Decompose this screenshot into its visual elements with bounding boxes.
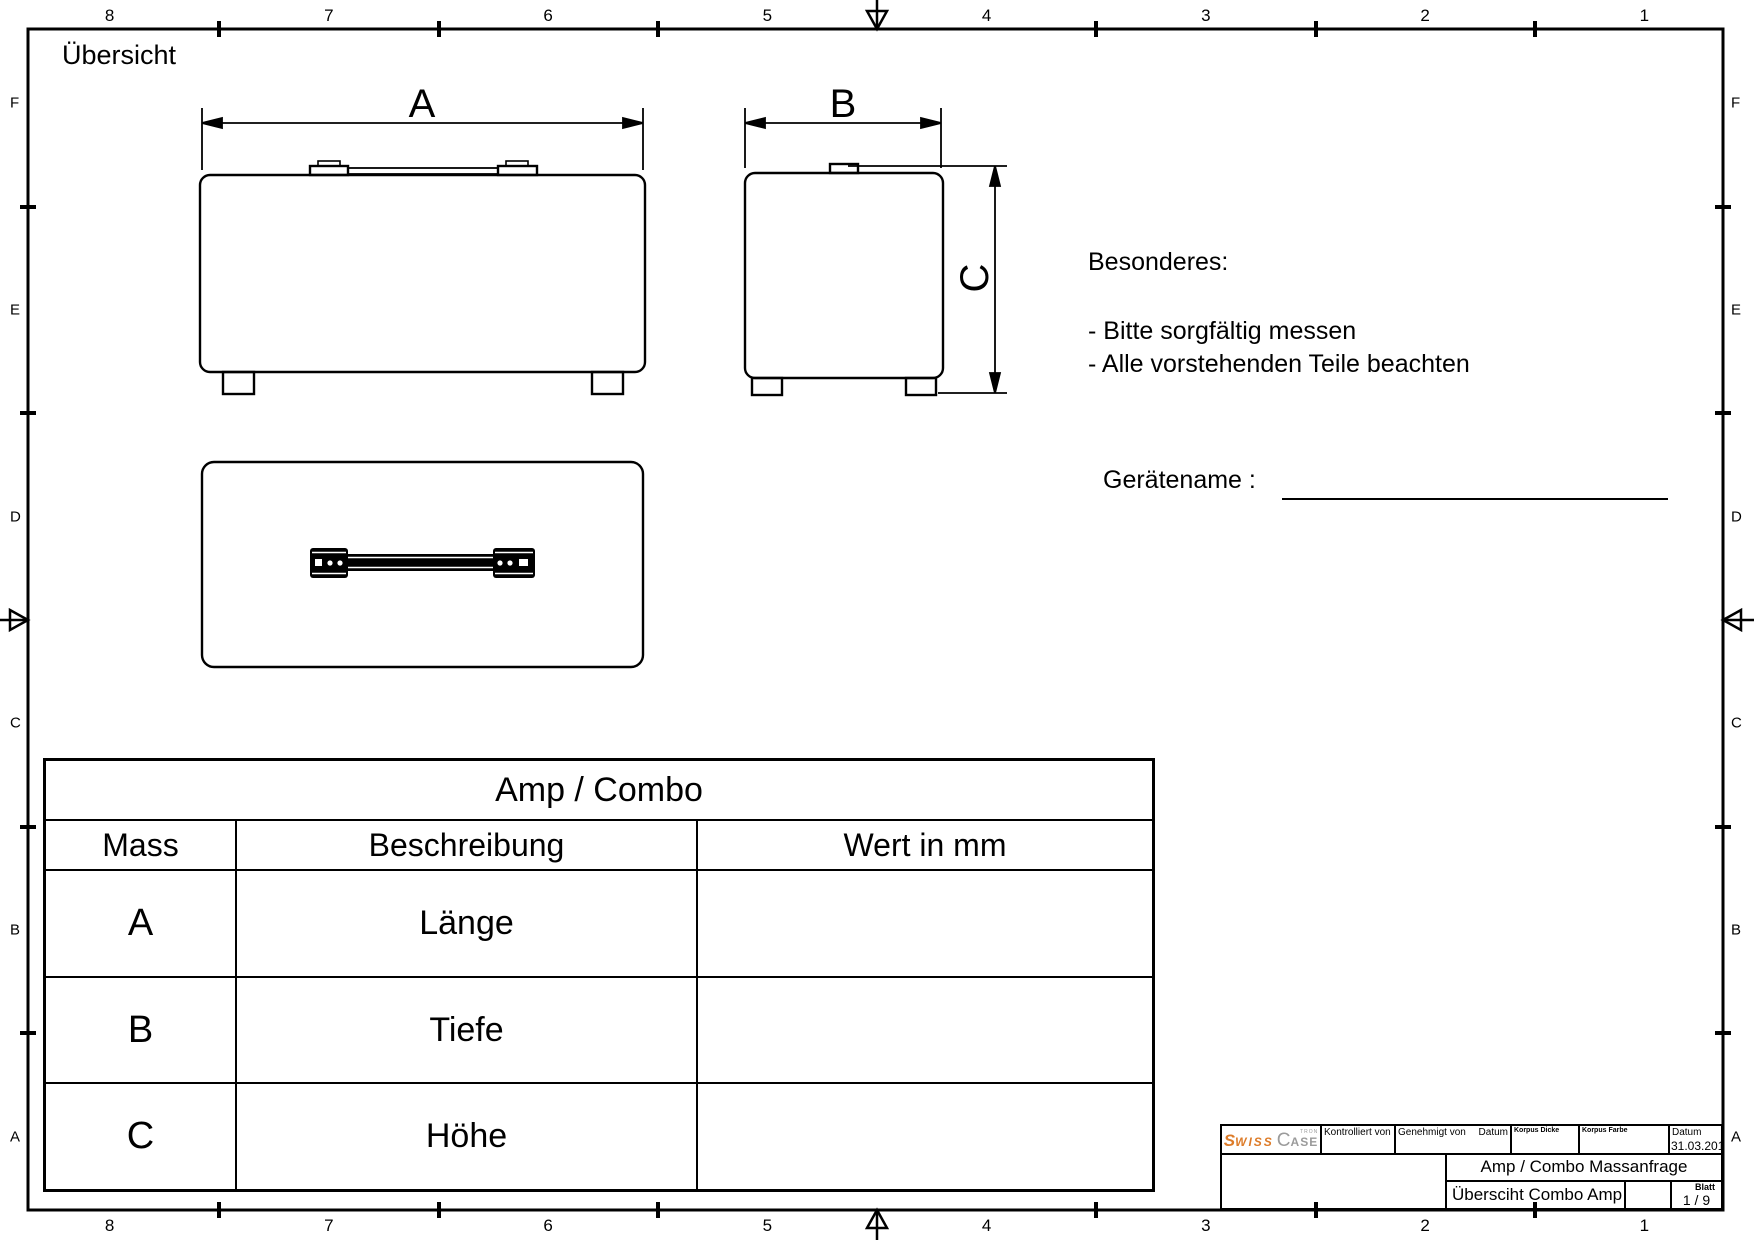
zone-column-label: 8: [105, 6, 114, 26]
zone-column-label: 2: [1420, 6, 1429, 26]
table-row: A Länge: [46, 869, 1152, 976]
front-foot-right: [592, 372, 623, 394]
kontrolliert-cell: Kontrolliert von: [1320, 1126, 1394, 1153]
zone-tick: [1314, 1202, 1318, 1218]
row-mass: A: [46, 871, 235, 976]
zone-tick: [217, 21, 221, 37]
front-handle-bracket-right: [498, 166, 537, 175]
zone-tick: [20, 205, 36, 209]
top-view-handle: [310, 548, 535, 578]
zone-row-label: D: [1731, 508, 1742, 525]
side-view: [745, 164, 943, 395]
zone-tick: [1314, 21, 1318, 37]
col-header-mass: Mass: [46, 821, 235, 869]
table-row: C Höhe: [46, 1082, 1152, 1189]
table-row: B Tiefe: [46, 976, 1152, 1083]
zone-tick: [437, 1202, 441, 1218]
zone-row-label: E: [1731, 302, 1741, 319]
zone-tick: [1715, 825, 1731, 829]
side-foot-right: [906, 378, 936, 395]
zone-column-label: 8: [105, 1216, 114, 1236]
row-mass: C: [46, 1084, 235, 1189]
centering-mark-top: [867, 0, 887, 29]
zone-column-label: 6: [543, 1216, 552, 1236]
zone-column-label: 1: [1640, 6, 1649, 26]
device-name-label: Gerätename :: [1103, 466, 1256, 495]
zone-column-label: 3: [1201, 6, 1210, 26]
zone-tick: [1715, 411, 1731, 415]
zone-row-label: E: [10, 302, 20, 319]
row-wert-field[interactable]: [696, 871, 1152, 976]
genehmigt-cell: Genehmigt von Datum: [1394, 1126, 1510, 1153]
zone-row-label: A: [10, 1128, 20, 1145]
side-foot-left: [752, 378, 782, 395]
zone-row-label: B: [1731, 922, 1741, 939]
zone-tick: [20, 411, 36, 415]
zone-column-label: 6: [543, 6, 552, 26]
zone-row-label: C: [10, 715, 21, 732]
logo-cell: SWISSCTRONASE: [1222, 1126, 1320, 1153]
row-wert-field[interactable]: [696, 978, 1152, 1083]
zone-column-label: 7: [324, 6, 333, 26]
dim-label-c: C: [953, 264, 997, 293]
datum-cell: Datum 31.03.2010: [1668, 1126, 1721, 1153]
row-beschreibung: Tiefe: [235, 978, 696, 1083]
zone-column-label: 5: [763, 6, 772, 26]
notes-heading: Besonderes:: [1088, 248, 1228, 277]
zone-column-label: 2: [1420, 1216, 1429, 1236]
korpus-dicke-cell: Korpus Dicke: [1510, 1126, 1578, 1153]
zone-row-label: F: [1731, 95, 1740, 112]
title-block: SWISSCTRONASE Kontrolliert von Genehmigt…: [1220, 1124, 1723, 1210]
zone-tick: [1094, 1202, 1098, 1218]
col-header-wert: Wert in mm: [696, 821, 1152, 869]
page-title: Übersicht: [62, 40, 176, 71]
top-handle-bar: [348, 554, 493, 571]
row-beschreibung: Länge: [235, 871, 696, 976]
zone-column-label: 4: [982, 1216, 991, 1236]
centering-mark-left: [0, 610, 28, 630]
row-beschreibung: Höhe: [235, 1084, 696, 1189]
centering-mark-right: [1723, 610, 1754, 630]
zone-column-label: 3: [1201, 1216, 1210, 1236]
zone-column-label: 5: [763, 1216, 772, 1236]
swisscase-logo: SWISSCTRONASE: [1222, 1126, 1320, 1152]
datum-value: 31.03.2010: [1670, 1139, 1721, 1153]
zone-row-label: C: [1731, 715, 1742, 732]
side-view-body: [745, 173, 943, 378]
front-view-body: [200, 175, 645, 372]
front-handle-bar: [348, 168, 498, 174]
note-item: - Alle vorstehenden Teile beachten: [1088, 350, 1470, 379]
zone-column-label: 7: [324, 1216, 333, 1236]
zone-tick: [1715, 205, 1731, 209]
zone-row-label: A: [1731, 1128, 1741, 1145]
dim-label-a: A: [409, 82, 436, 126]
zone-tick: [437, 21, 441, 37]
zone-tick: [20, 825, 36, 829]
titleblock-empty-cell: [1222, 1155, 1445, 1208]
dim-label-b: B: [830, 82, 857, 126]
zone-tick: [656, 1202, 660, 1218]
zone-tick: [217, 1202, 221, 1218]
zone-tick: [20, 1031, 36, 1035]
row-mass: B: [46, 978, 235, 1083]
table-title: Amp / Combo: [46, 761, 1152, 819]
zone-tick: [1094, 21, 1098, 37]
zone-tick: [1533, 21, 1537, 37]
device-name-input-line[interactable]: [1282, 478, 1668, 500]
measurement-table: Amp / Combo Mass Beschreibung Wert in mm…: [43, 758, 1155, 1192]
project-title: Amp / Combo Massanfrage: [1447, 1155, 1721, 1182]
titleblock-small-empty-cell: [1624, 1182, 1670, 1208]
zone-tick: [656, 21, 660, 37]
front-view: [200, 161, 645, 394]
row-wert-field[interactable]: [696, 1084, 1152, 1189]
zone-row-label: F: [10, 95, 19, 112]
zone-tick: [1533, 1202, 1537, 1218]
korpus-farbe-cell: Korpus Farbe: [1578, 1126, 1668, 1153]
note-item: - Bitte sorgfältig messen: [1088, 317, 1356, 346]
front-foot-left: [223, 372, 254, 394]
zone-column-label: 1: [1640, 1216, 1649, 1236]
zone-row-label: B: [10, 922, 20, 939]
blatt-cell: Blatt 1 / 9: [1670, 1182, 1721, 1208]
zone-row-label: D: [10, 508, 21, 525]
zone-column-label: 4: [982, 6, 991, 26]
sheet-number: 1 / 9: [1683, 1192, 1710, 1208]
centering-mark-bottom: [867, 1210, 887, 1240]
col-header-beschreibung: Beschreibung: [235, 821, 696, 869]
zone-tick: [1715, 1031, 1731, 1035]
front-handle-bracket-left: [310, 166, 348, 175]
drawing-sheet: A B C Übersicht Besonderes: - Bitte sorg…: [0, 0, 1754, 1240]
